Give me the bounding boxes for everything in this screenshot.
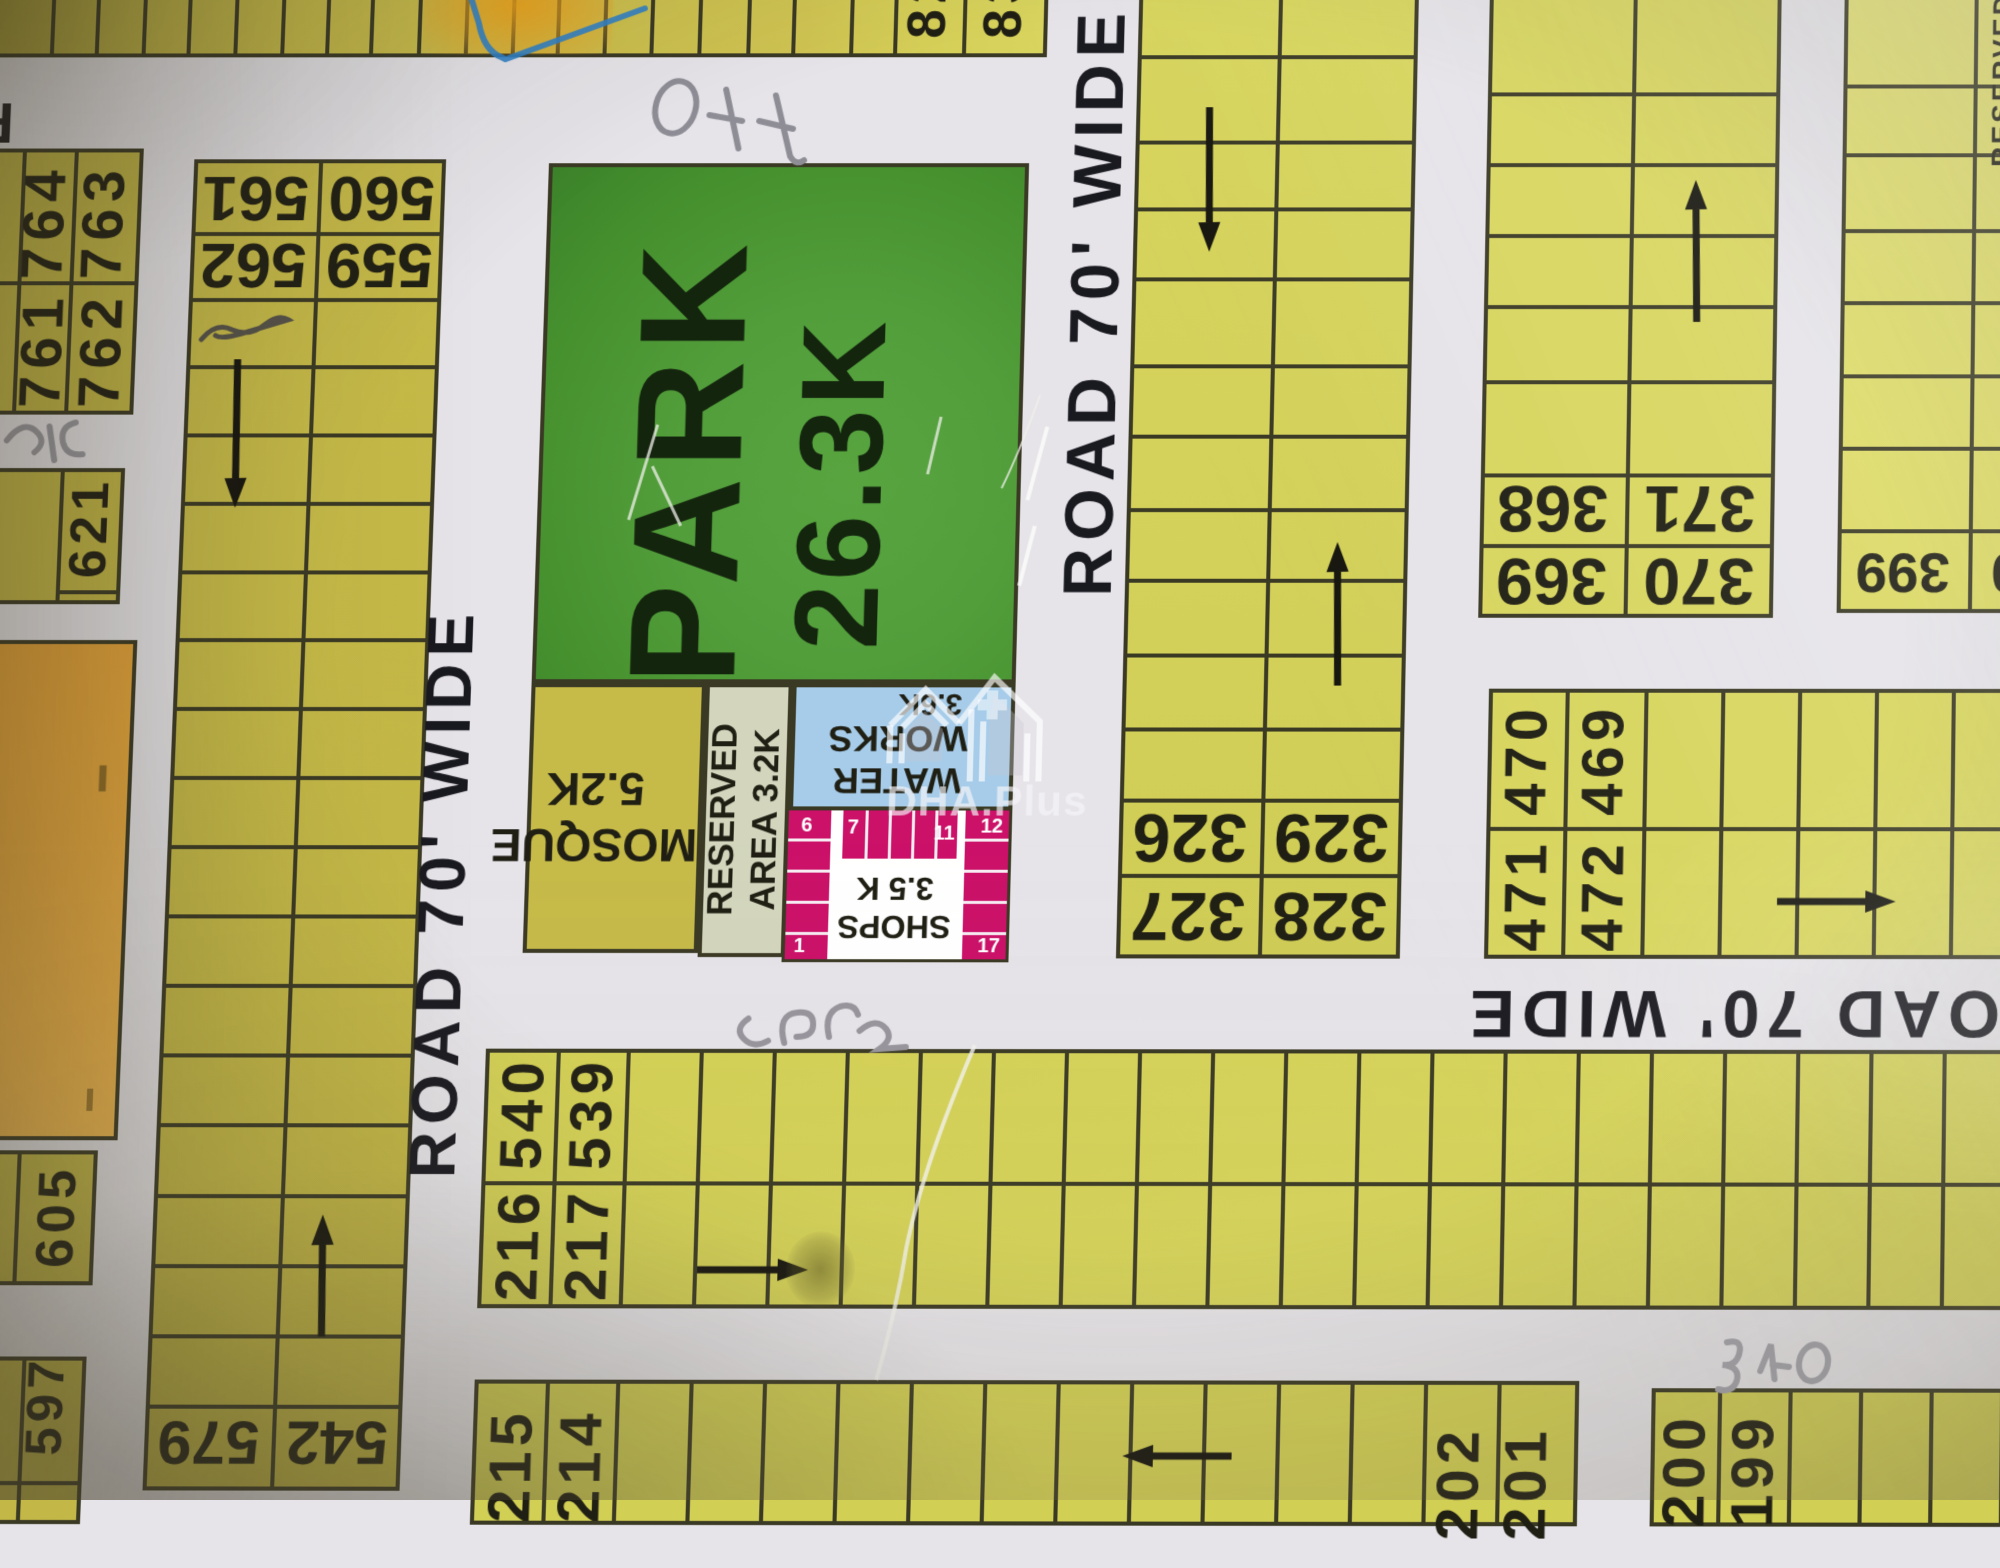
svg-text:DHA.Plus: DHA.Plus: [886, 777, 1089, 825]
